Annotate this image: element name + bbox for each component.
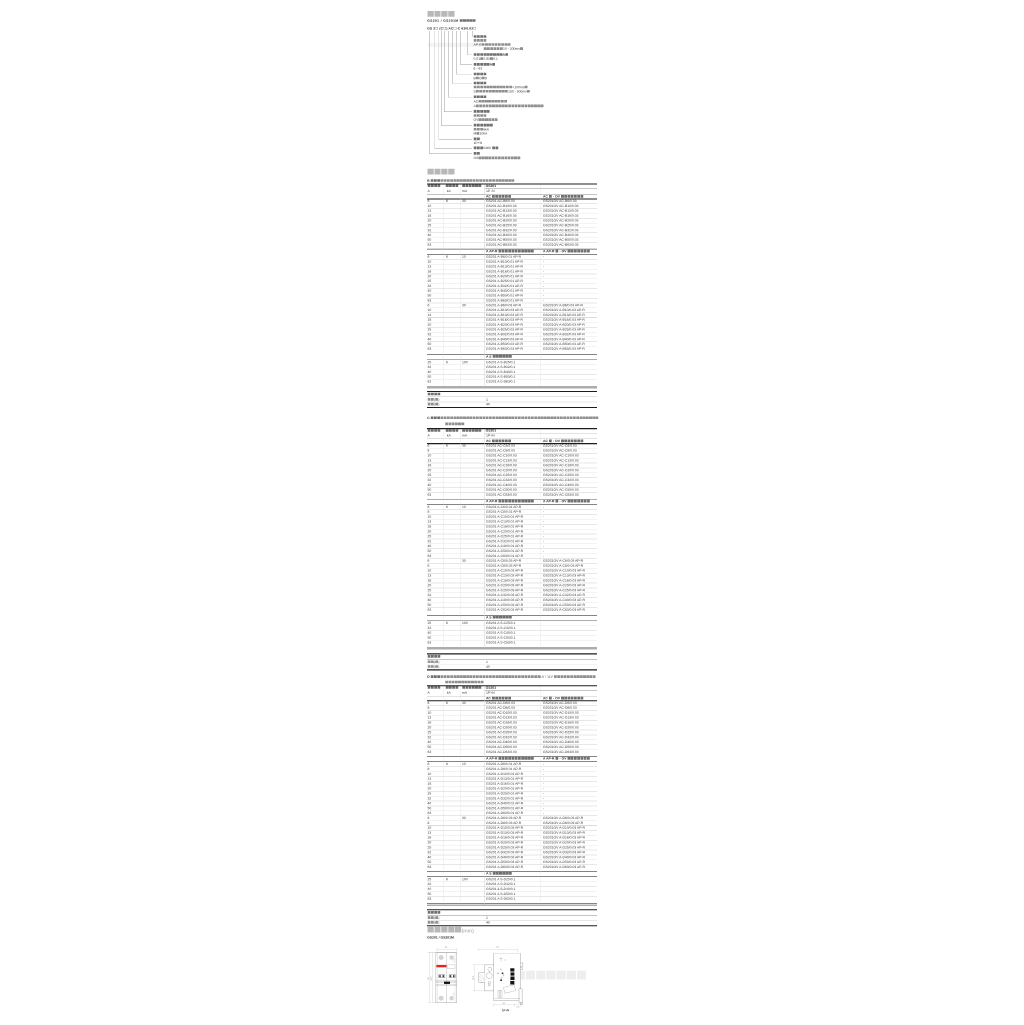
- svg-text:1P+N: 1P+N: [502, 1008, 509, 1012]
- svg-text:69: 69: [497, 947, 500, 949]
- svg-text:45: 45: [503, 1003, 506, 1005]
- svg-text:85.5: 85.5: [431, 976, 433, 981]
- svg-text:5.5: 5.5: [517, 1007, 521, 1009]
- svg-text:36: 36: [445, 947, 448, 949]
